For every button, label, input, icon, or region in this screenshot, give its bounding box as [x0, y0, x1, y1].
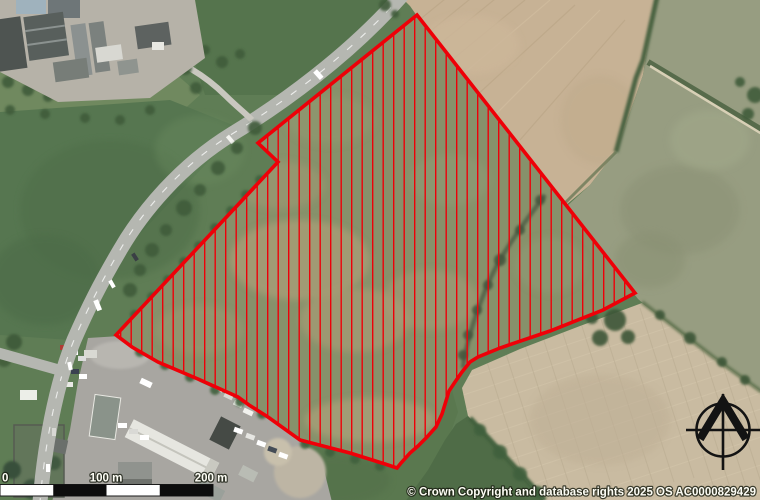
scale-bar-label-0: 0 [2, 473, 8, 485]
map-viewport: 0 100 m 200 m © Crown Copyright and data… [0, 0, 760, 500]
scale-bar-label-200: 200 m [195, 473, 228, 485]
attribution-text: © Crown Copyright and database rights 20… [407, 487, 756, 499]
scale-bar-label-100: 100 m [90, 473, 123, 485]
warehouse [89, 394, 121, 439]
aerial-basemap: 0 100 m 200 m © Crown Copyright and data… [0, 0, 760, 500]
